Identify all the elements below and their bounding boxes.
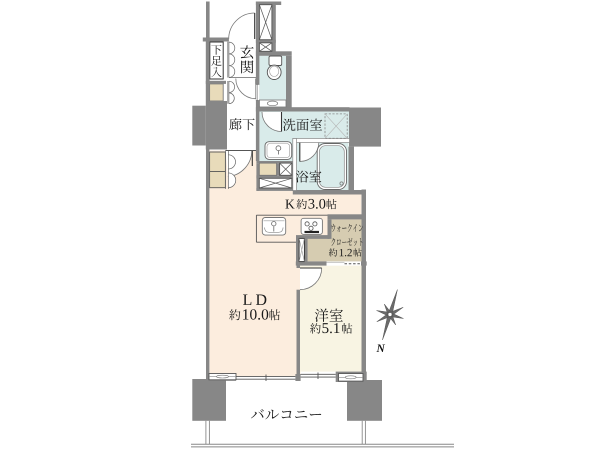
svg-text:N: N [376,343,386,355]
